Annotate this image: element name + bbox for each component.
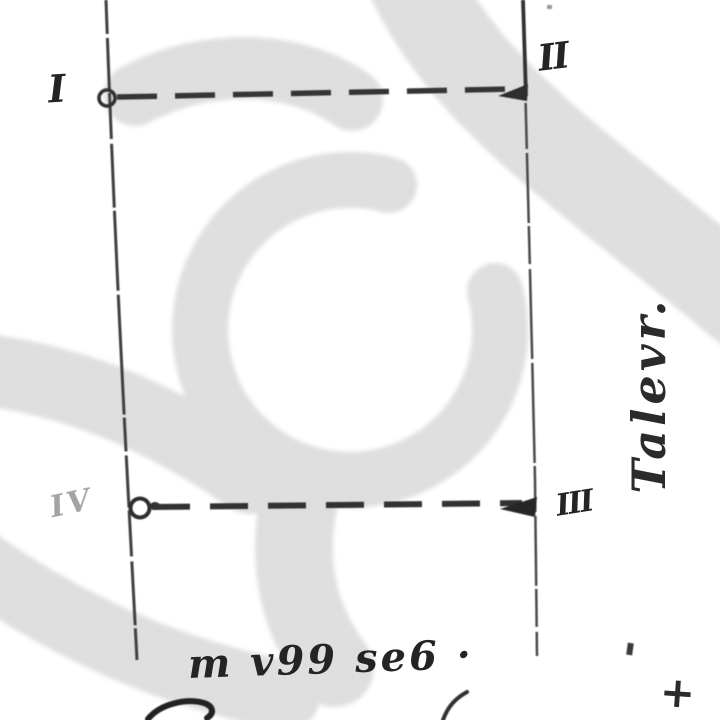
corner-point-iii-mark [500,497,537,517]
side-label-rotated: Talevr. [622,195,682,595]
ink-drawing-layer [0,0,720,720]
corner-point-iv-knot [150,502,160,510]
plus-mark: + [658,667,697,718]
bottom-caption: m v99 se6 · [187,631,474,688]
ink-speck [626,643,634,656]
ink-speck [547,5,552,9]
cutoff-glyph-fragment-left [148,701,212,719]
corner-label-bottom-right: III [553,483,594,523]
corner-label-top-left: I [46,66,65,112]
corner-point-i-circle [99,90,115,106]
scanned-manuscript-page: I II III IV Talevr. m v99 se6 · + [0,0,720,720]
bottom-dashed-line [152,503,522,507]
top-dashed-line [117,89,512,97]
corner-point-iv-circle [131,499,150,518]
corner-label-top-right: II [536,34,571,79]
cutoff-glyph-fragment-center [443,692,467,720]
right-boundary-line-top [523,0,526,96]
